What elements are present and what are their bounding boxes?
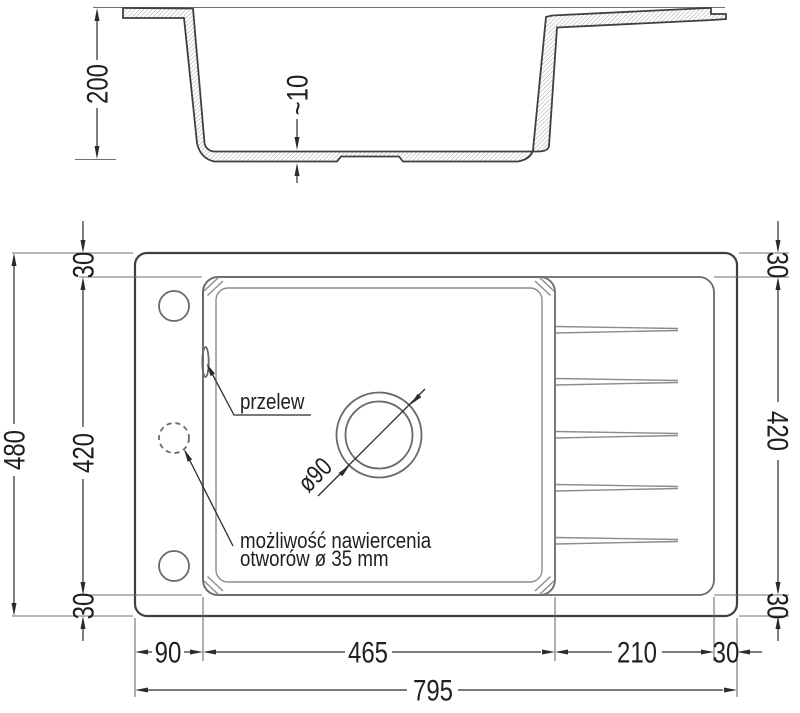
dim-right-inner-420: 420 — [761, 411, 795, 451]
dim-right-margin-30: 30 — [713, 635, 740, 669]
drainer-groove — [556, 432, 678, 439]
label-overflow: przelew — [240, 391, 305, 415]
dim-right-rim-bottom-30: 30 — [761, 593, 795, 620]
dim-overall-width: 795 — [135, 673, 737, 707]
tap-hole-top — [159, 291, 189, 321]
section-profile — [123, 8, 726, 162]
tap-hole-bottom — [159, 551, 189, 581]
dim-floor-thickness-10: ~10 — [280, 75, 314, 116]
plan-dimensions: 480 30 420 30 — [0, 221, 795, 707]
overflow-callout: przelew — [204, 362, 311, 415]
label-holes-note-line2: otworów ø 35 mm — [240, 548, 389, 572]
dim-depth-200: 200 — [80, 64, 114, 104]
dim-floor-thickness: ~10 — [280, 75, 314, 183]
dim-drain-diameter: ø90 — [292, 452, 338, 498]
dim-overall-depth-480: 480 — [0, 430, 31, 470]
drainer-groove — [556, 538, 678, 545]
optional-hole-dashed — [159, 423, 189, 453]
dim-bowl-width-465: 465 — [348, 635, 388, 669]
drainer-grooves — [556, 327, 678, 545]
dim-left-rim-top-30: 30 — [66, 252, 100, 279]
dim-bottom-row: 90 465 210 30 — [135, 635, 762, 669]
dim-drain: ø90 — [292, 389, 425, 498]
drainer-groove — [556, 485, 678, 492]
dim-drainer-width-210: 210 — [617, 635, 657, 669]
drawing-canvas: 200 ~10 — [0, 0, 800, 713]
section-view: 200 ~10 — [75, 8, 726, 184]
dim-overall-depth: 480 — [0, 253, 31, 616]
dim-left-margin-90: 90 — [155, 635, 182, 669]
dim-depth: 200 — [80, 8, 114, 159]
technical-drawing: 200 ~10 — [0, 0, 800, 713]
dim-right-rim-top-30: 30 — [761, 252, 795, 279]
dim-left-inner-420: 420 — [66, 433, 100, 473]
dim-left-column: 30 420 30 — [66, 221, 100, 641]
dim-right-column: 30 420 30 — [761, 221, 795, 641]
plan-view: ø90 przelew możliwość nawiercenia otworó… — [135, 253, 737, 616]
dim-left-rim-bottom-30: 30 — [66, 593, 100, 620]
sink-outline — [135, 253, 737, 616]
drainer-groove — [556, 379, 678, 386]
dim-overall-width-795: 795 — [413, 673, 453, 707]
drainer-groove — [556, 327, 678, 334]
extension-lines — [12, 253, 789, 697]
